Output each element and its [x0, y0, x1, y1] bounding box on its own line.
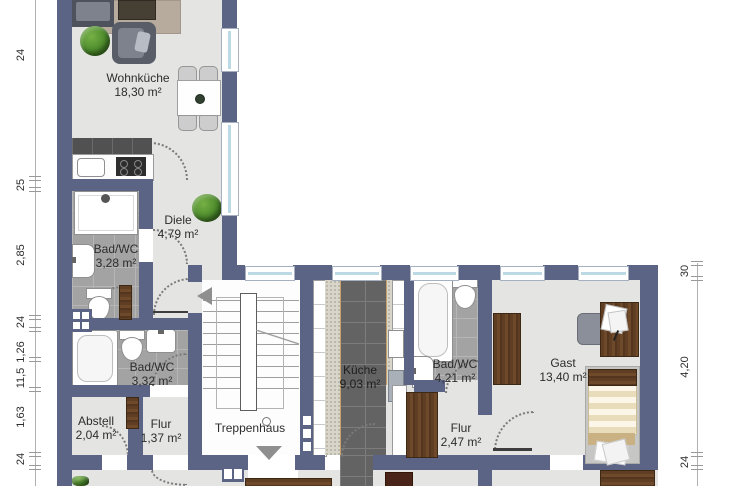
wall-bottom-stub: [478, 455, 492, 486]
room-label-wohnkueche: Wohnküche 18,30 m²: [106, 71, 169, 99]
floorplan-canvas: Wohnküche 18,30 m² Diele 4,79 m² Bad/WC …: [0, 0, 730, 486]
room-label-bad-wc-1: Bad/WC 3,28 m²: [94, 242, 139, 270]
dim-label: 11,5: [15, 368, 27, 389]
room-area: 1,37 m²: [141, 431, 182, 445]
room-name: Diele: [158, 213, 199, 227]
window: [410, 266, 459, 281]
dining-chair-icon: [199, 115, 218, 131]
wall-top-a: [222, 265, 245, 280]
shaft-symbol: [70, 309, 92, 332]
room-area: 13,40 m²: [539, 370, 586, 384]
stair-newel: [240, 293, 257, 411]
washbasin-icon: [72, 244, 95, 278]
wall-bad3-gast: [478, 280, 492, 415]
dim-label: 24: [15, 49, 27, 61]
dim-tick: [691, 276, 703, 281]
gast-door-leaf: [493, 448, 532, 451]
wall-exterior-left: [57, 0, 72, 486]
wall-bottom-b: [127, 455, 153, 470]
room-name: Flur: [141, 417, 182, 431]
kitchen-counter-left: [325, 280, 341, 455]
room-area: 3,28 m²: [94, 256, 139, 270]
dim-tick: [29, 452, 41, 457]
stair-break-line: [256, 330, 299, 344]
room-label-abstell: Abstell 2,04 m²: [76, 414, 117, 442]
fridge-icon: [388, 330, 404, 358]
room-label-flur-2: Flur 2,47 m²: [441, 421, 482, 449]
wall-top-e: [543, 265, 578, 280]
room-area: 2,47 m²: [441, 435, 482, 449]
wardrobe-icon: [406, 392, 438, 458]
dim-tick: [29, 187, 41, 192]
dim-label: 1,26: [15, 341, 27, 362]
sideboard-icon: [245, 478, 332, 486]
dining-table-icon: [177, 80, 221, 116]
room-label-kueche: Küche 9,03 m²: [340, 363, 381, 391]
dim-label: 24: [15, 316, 27, 328]
tiles-kueche-door: [340, 455, 373, 486]
dimension-line-left: [35, 0, 36, 486]
wall-top-b: [293, 265, 332, 280]
dim-tick: [29, 327, 41, 332]
room-name: Treppenhaus: [215, 421, 285, 435]
washbasin-icon: [146, 329, 176, 353]
wall-bottom-g: [492, 455, 550, 470]
dining-chair-icon: [178, 115, 197, 131]
dim-label: 24: [15, 453, 27, 465]
bed-icon: [585, 366, 640, 464]
sideboard-icon: [600, 470, 655, 486]
dim-tick: [691, 465, 703, 470]
room-name: Abstell: [76, 414, 117, 428]
room-area: 2,04 m²: [76, 428, 117, 442]
room-area: 9,03 m²: [340, 377, 381, 391]
door-symbol-bottom: [222, 466, 244, 482]
dim-tick: [29, 357, 41, 362]
plant-icon: [72, 476, 89, 486]
wall-treppenhaus-left: [188, 313, 202, 458]
stair-arrow-down-icon: [256, 446, 282, 460]
room-name: Bad/WC: [94, 242, 139, 256]
dim-label: 4,20: [679, 356, 691, 377]
coffee-table-icon: [118, 0, 156, 20]
dim-tick: [691, 452, 703, 457]
window: [500, 266, 545, 281]
room-area: 4,21 m²: [433, 371, 478, 385]
cabinet-below-icon: [385, 472, 413, 486]
dim-tick: [29, 176, 41, 181]
radiator-icon: [302, 415, 312, 453]
wall-bottom-a: [57, 455, 102, 470]
sofa-icon: [72, 0, 114, 27]
window: [221, 122, 239, 216]
room-area: 4,79 m²: [158, 227, 199, 241]
closet-icon: [392, 385, 407, 459]
room-label-gast: Gast 13,40 m²: [539, 356, 586, 384]
room-name: Bad/WC: [130, 360, 175, 374]
wall-bad1-right-b: [139, 262, 153, 318]
bathtub-icon: [72, 330, 118, 387]
armchair-icon: [112, 22, 156, 64]
window: [245, 266, 295, 281]
window: [578, 266, 629, 281]
wall-bottom-e: [373, 455, 410, 470]
room-label-bad-wc-2: Bad/WC 3,32 m²: [130, 360, 175, 388]
dim-tick: [691, 261, 703, 266]
dim-label: 1,63: [15, 406, 27, 427]
room-name: Küche: [340, 363, 381, 377]
entry-door-leaf: [153, 311, 188, 313]
room-label-flur-1: Flur 1,37 m²: [141, 417, 182, 445]
bathtub-icon: [413, 278, 453, 362]
window: [332, 266, 382, 281]
dim-label: 25: [15, 179, 27, 191]
dim-tick: [29, 465, 41, 470]
room-name: Bad/WC: [433, 357, 478, 371]
room-name: Wohnküche: [106, 71, 169, 85]
dim-label: 30: [679, 265, 691, 277]
wall-bottom-d: [295, 455, 325, 470]
wall-kueche-right: [404, 280, 414, 385]
room-area: 3,32 m²: [130, 374, 175, 388]
wall-top-d: [457, 265, 500, 280]
dim-tick: [29, 315, 41, 320]
wall-bottom-i: [640, 455, 658, 470]
wardrobe-icon: [493, 313, 521, 385]
room-area: 18,30 m²: [106, 85, 169, 99]
room-label-treppenhaus: Treppenhaus: [215, 421, 285, 435]
room-label-bad-wc-3: Bad/WC 4,21 m²: [433, 357, 478, 385]
dim-tick: [29, 387, 41, 392]
room-name: Gast: [539, 356, 586, 370]
stove-icon: [116, 157, 146, 176]
sink-icon: [77, 158, 105, 177]
shower-icon: [74, 191, 138, 235]
wall-top-c: [380, 265, 410, 280]
window: [221, 28, 239, 72]
stair-arrow-left-icon: [197, 287, 212, 305]
open-door-leaf: [126, 397, 139, 429]
room-label-diele: Diele 4,79 m²: [158, 213, 199, 241]
dim-label: 24: [679, 456, 691, 468]
wall-exterior-right: [640, 265, 658, 470]
room-name: Flur: [441, 421, 482, 435]
wall-treppenhaus-left-top: [188, 265, 202, 282]
dim-label: 2,85: [15, 244, 27, 265]
wall-bad1-right-a: [139, 179, 153, 229]
open-door-leaf: [119, 285, 132, 320]
kitchen-backsplash: [72, 138, 152, 154]
plant-icon: [80, 26, 110, 56]
